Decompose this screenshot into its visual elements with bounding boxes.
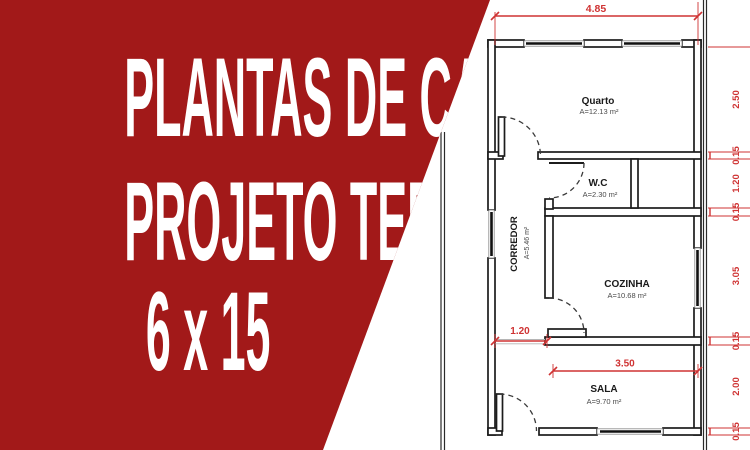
wc-label: W.C xyxy=(589,178,608,189)
dim-right-7: 0.15 xyxy=(731,422,742,441)
wc-door-icon xyxy=(549,163,584,198)
door-symbols xyxy=(495,117,586,431)
dim-right-5: 0.15 xyxy=(731,331,742,350)
wc-area: A=2.30 m² xyxy=(583,190,618,199)
corredor-window-icon xyxy=(489,210,494,258)
title-line-2: PROJETO TERRENO xyxy=(124,166,292,278)
cozinha-window-icon xyxy=(695,248,700,308)
sala-area: A=9.70 m² xyxy=(587,397,622,406)
dim-right-4: 3.05 xyxy=(731,266,742,285)
dim-top-width-value: 4.85 xyxy=(586,3,607,15)
cozinha-label: COZINHA xyxy=(604,279,650,290)
dim-right-0: 2.50 xyxy=(731,90,742,109)
property-lines xyxy=(441,0,707,450)
sala-label: SALA xyxy=(590,384,617,395)
corredor-label: CORREDOR xyxy=(509,216,520,272)
dimension-sala-width: 3.50 xyxy=(549,359,702,379)
dim-right-3: 0.15 xyxy=(731,202,742,221)
quarto-area: A=12.13 m² xyxy=(580,107,619,116)
quarto-label: Quarto xyxy=(582,96,615,107)
quarto-door-icon xyxy=(499,117,541,156)
sala-door-icon xyxy=(497,394,537,431)
dim-hall-opening-value: 1.20 xyxy=(510,326,530,337)
dimension-top-width: 4.85 xyxy=(491,2,702,45)
dimension-right-chain: 2.50 0.15 1.20 0.15 3.05 0.15 2.00 0.15 xyxy=(708,47,750,441)
sala-window-icon xyxy=(597,429,663,434)
dim-sala-width-value: 3.50 xyxy=(615,359,635,370)
dim-right-6: 2.00 xyxy=(731,377,742,396)
cozinha-door-icon xyxy=(548,298,586,337)
corredor-area: A=5.46 m² xyxy=(524,226,531,259)
title-line-1: PLANTAS DE CASAS xyxy=(124,42,292,154)
dim-right-1: 0.15 xyxy=(731,146,742,165)
title-line-3: 6 x 15 xyxy=(124,276,292,388)
thumbnail-canvas: Quarto A=12.13 m² W.C A=2.30 m² CORREDOR… xyxy=(0,0,750,450)
dim-right-2: 1.20 xyxy=(731,174,742,193)
cozinha-area: A=10.68 m² xyxy=(608,291,647,300)
dimension-hall-opening: 1.20 xyxy=(491,326,551,348)
